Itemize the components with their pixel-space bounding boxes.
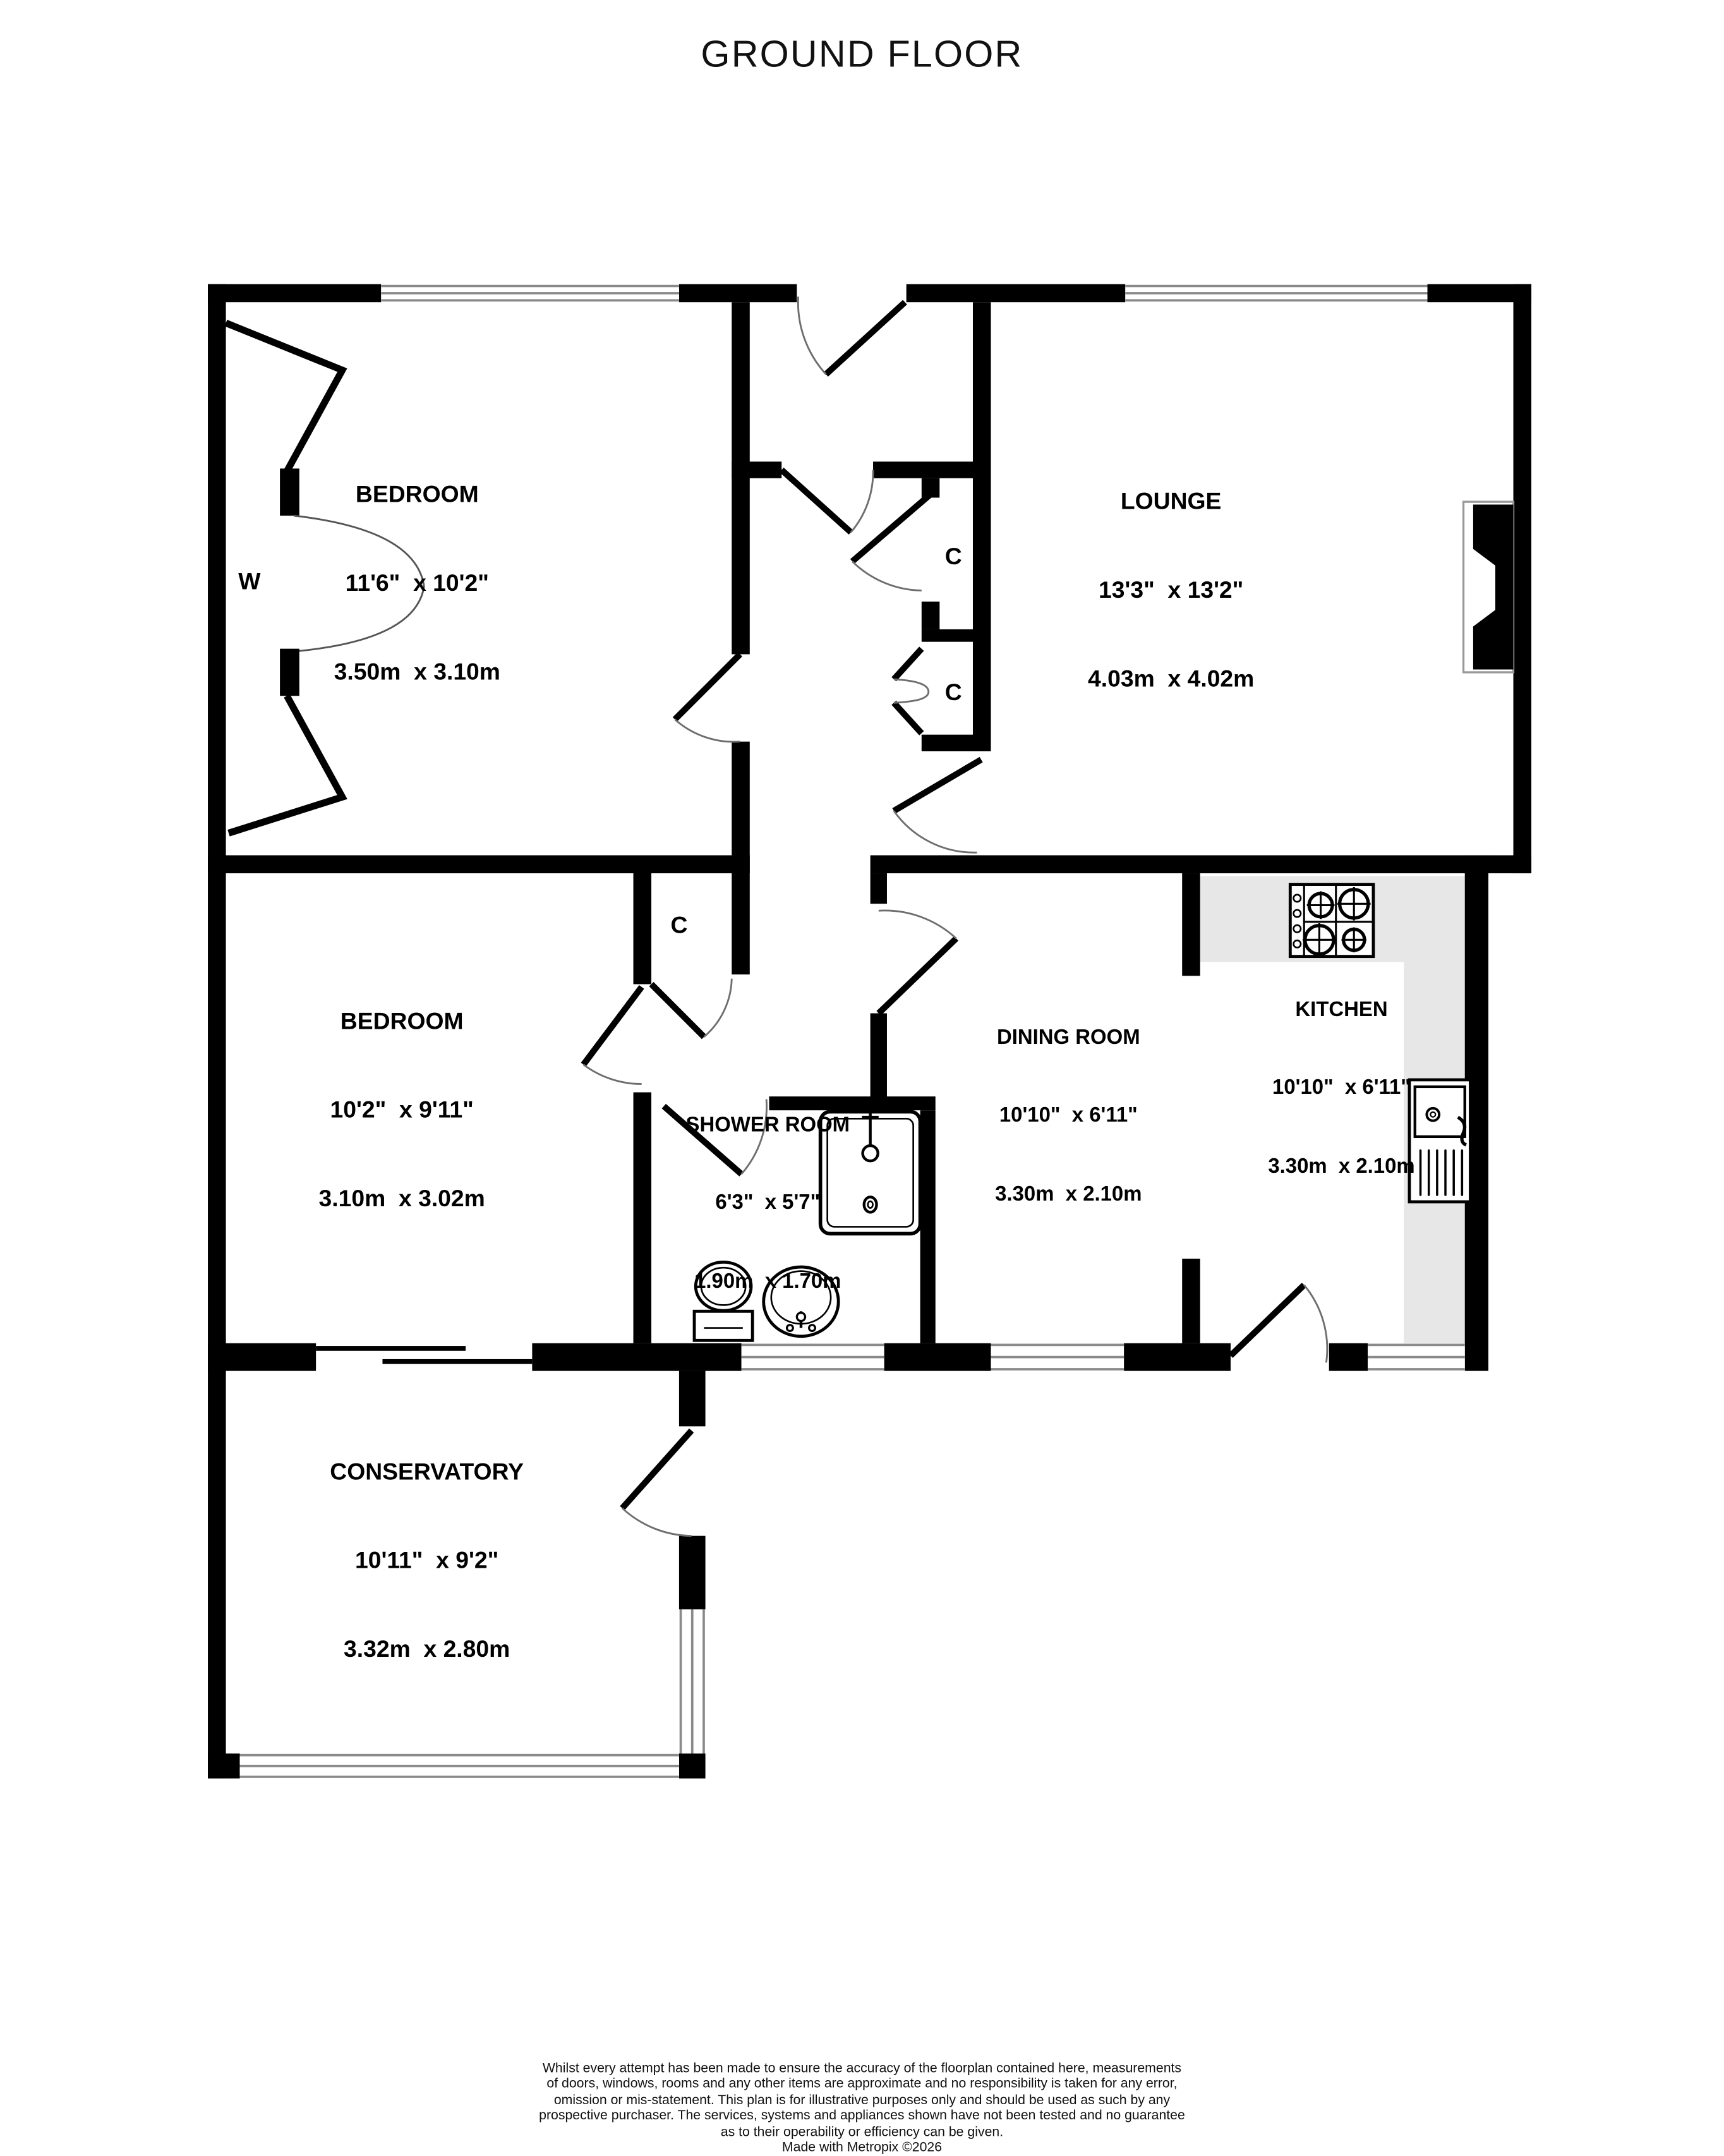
- room-name: LOUNGE: [1088, 487, 1254, 516]
- room-size-metric: 4.03m x 4.02m: [1088, 665, 1254, 694]
- wall-segment: [871, 873, 887, 904]
- disclaimer-line: prospective purchaser. The services, sys…: [0, 2109, 1724, 2124]
- room-size-metric: 3.30m x 2.10m: [1268, 1155, 1414, 1181]
- room-size-metric: 3.50m x 3.10m: [334, 658, 500, 687]
- room-label-shower-room: SHOWER ROOM 6'3" x 5'7" 1.90m x 1.70m: [686, 1060, 850, 1348]
- front-door-icon: [798, 296, 905, 374]
- hall-door-icon: [781, 470, 873, 533]
- closet-door-icon: [852, 495, 930, 590]
- room-name: DINING ROOM: [995, 1026, 1142, 1051]
- wall-segment: [1329, 1343, 1368, 1371]
- room-name: KITCHEN: [1268, 998, 1414, 1024]
- wall-segment: [732, 742, 750, 856]
- disclaimer-line: of doors, windows, rooms and any other i…: [0, 2077, 1724, 2093]
- room-size-imperial: 10'11" x 9'2": [330, 1546, 524, 1576]
- window: [679, 1609, 706, 1753]
- conservatory-door-icon: [622, 1431, 692, 1536]
- room-size-imperial: 10'10" x 6'11": [1268, 1077, 1414, 1103]
- room-size-imperial: 10'10" x 6'11": [995, 1104, 1142, 1130]
- closet-marker: C: [945, 679, 962, 707]
- wall-segment: [208, 1753, 239, 1778]
- room-label-dining-room: DINING ROOM 10'10" x 6'11" 3.30m x 2.10m: [995, 973, 1142, 1261]
- room-size-metric: 1.90m x 1.70m: [686, 1270, 850, 1296]
- window: [1125, 284, 1427, 303]
- window: [1368, 1343, 1465, 1371]
- window: [240, 1753, 679, 1778]
- dining-door-icon: [879, 911, 956, 1014]
- wall-segment: [1124, 1343, 1231, 1371]
- wardrobe-marker: W: [238, 568, 260, 596]
- wall-segment: [922, 735, 991, 751]
- wall-segment: [634, 865, 652, 984]
- bedroom1-door-icon: [675, 654, 740, 742]
- wall-segment: [208, 284, 226, 1779]
- wall-segment: [1182, 873, 1200, 976]
- wall-segment: [208, 284, 381, 303]
- bifold-door-icon: [894, 649, 929, 734]
- window: [381, 284, 679, 303]
- wall-segment: [679, 1536, 706, 1609]
- lounge-door-icon: [894, 760, 981, 852]
- room-label-conservatory: CONSERVATORY 10'11" x 9'2" 3.32m x 2.80m: [330, 1398, 524, 1724]
- wall-segment: [679, 1753, 706, 1778]
- wall-segment: [208, 856, 750, 874]
- kitchen-sink-icon: [1409, 1080, 1471, 1202]
- room-name: CONSERVATORY: [330, 1457, 524, 1487]
- window: [991, 1343, 1124, 1371]
- room-size-imperial: 13'3" x 13'2": [1088, 576, 1254, 605]
- fireplace-icon: [1464, 502, 1514, 672]
- room-size-metric: 3.30m x 2.10m: [995, 1183, 1142, 1209]
- room-size-imperial: 6'3" x 5'7": [686, 1192, 850, 1218]
- wall-segment: [679, 284, 797, 303]
- room-size-metric: 3.10m x 3.02m: [319, 1185, 485, 1214]
- room-label-kitchen: KITCHEN 10'10" x 6'11" 3.30m x 2.10m: [1268, 945, 1414, 1233]
- disclaimer-line: Whilst every attempt has been made to en…: [0, 2061, 1724, 2077]
- wall-segment: [922, 629, 991, 642]
- wall-segment: [871, 856, 1531, 874]
- wall-segment: [208, 1343, 316, 1371]
- wall-segment: [1182, 1259, 1200, 1343]
- wall-segment: [922, 478, 940, 498]
- closet-marker: C: [670, 912, 687, 940]
- wall-segment: [679, 1371, 706, 1427]
- disclaimer-line: as to their operability or efficiency ca…: [0, 2124, 1724, 2140]
- room-name: SHOWER ROOM: [686, 1113, 850, 1139]
- floorplan-drawing: [0, 0, 1724, 2152]
- bedroom2-closet-door-icon: [651, 979, 732, 1037]
- wall-segment: [871, 1014, 887, 1102]
- room-label-lounge: LOUNGE 13'3" x 13'2" 4.03m x 4.02m: [1088, 427, 1254, 754]
- disclaimer-line: omission or mis-statement. This plan is …: [0, 2093, 1724, 2109]
- room-name: BEDROOM: [334, 480, 500, 509]
- back-door-icon: [1231, 1285, 1327, 1363]
- room-size-imperial: 11'6" x 10'2": [334, 569, 500, 598]
- wall-segment: [922, 602, 940, 629]
- wall-segment: [973, 302, 991, 751]
- room-name: BEDROOM: [319, 1007, 485, 1036]
- wall-segment: [634, 1093, 652, 1343]
- sliding-door-icon: [316, 1346, 532, 1364]
- floorplan-page: GROUND FLOOR: [0, 0, 1724, 2152]
- room-size-imperial: 10'2" x 9'11": [319, 1096, 485, 1125]
- wall-segment: [884, 1343, 991, 1371]
- room-size-metric: 3.32m x 2.80m: [330, 1635, 524, 1665]
- wall-segment: [732, 856, 750, 975]
- wall-segment: [1514, 284, 1532, 873]
- room-label-bedroom-1: BEDROOM 11'6" x 10'2" 3.50m x 3.10m: [334, 420, 500, 747]
- wall-segment: [907, 284, 1126, 303]
- wall-segment: [732, 462, 781, 478]
- bedroom2-door-icon: [584, 987, 642, 1084]
- closet-marker: C: [945, 543, 962, 571]
- disclaimer: Whilst every attempt has been made to en…: [0, 2061, 1724, 2156]
- wall-segment: [920, 1110, 936, 1343]
- credit-line: Made with Metropix ©2026: [0, 2140, 1724, 2156]
- room-label-bedroom-2: BEDROOM 10'2" x 9'11" 3.10m x 3.02m: [319, 947, 485, 1274]
